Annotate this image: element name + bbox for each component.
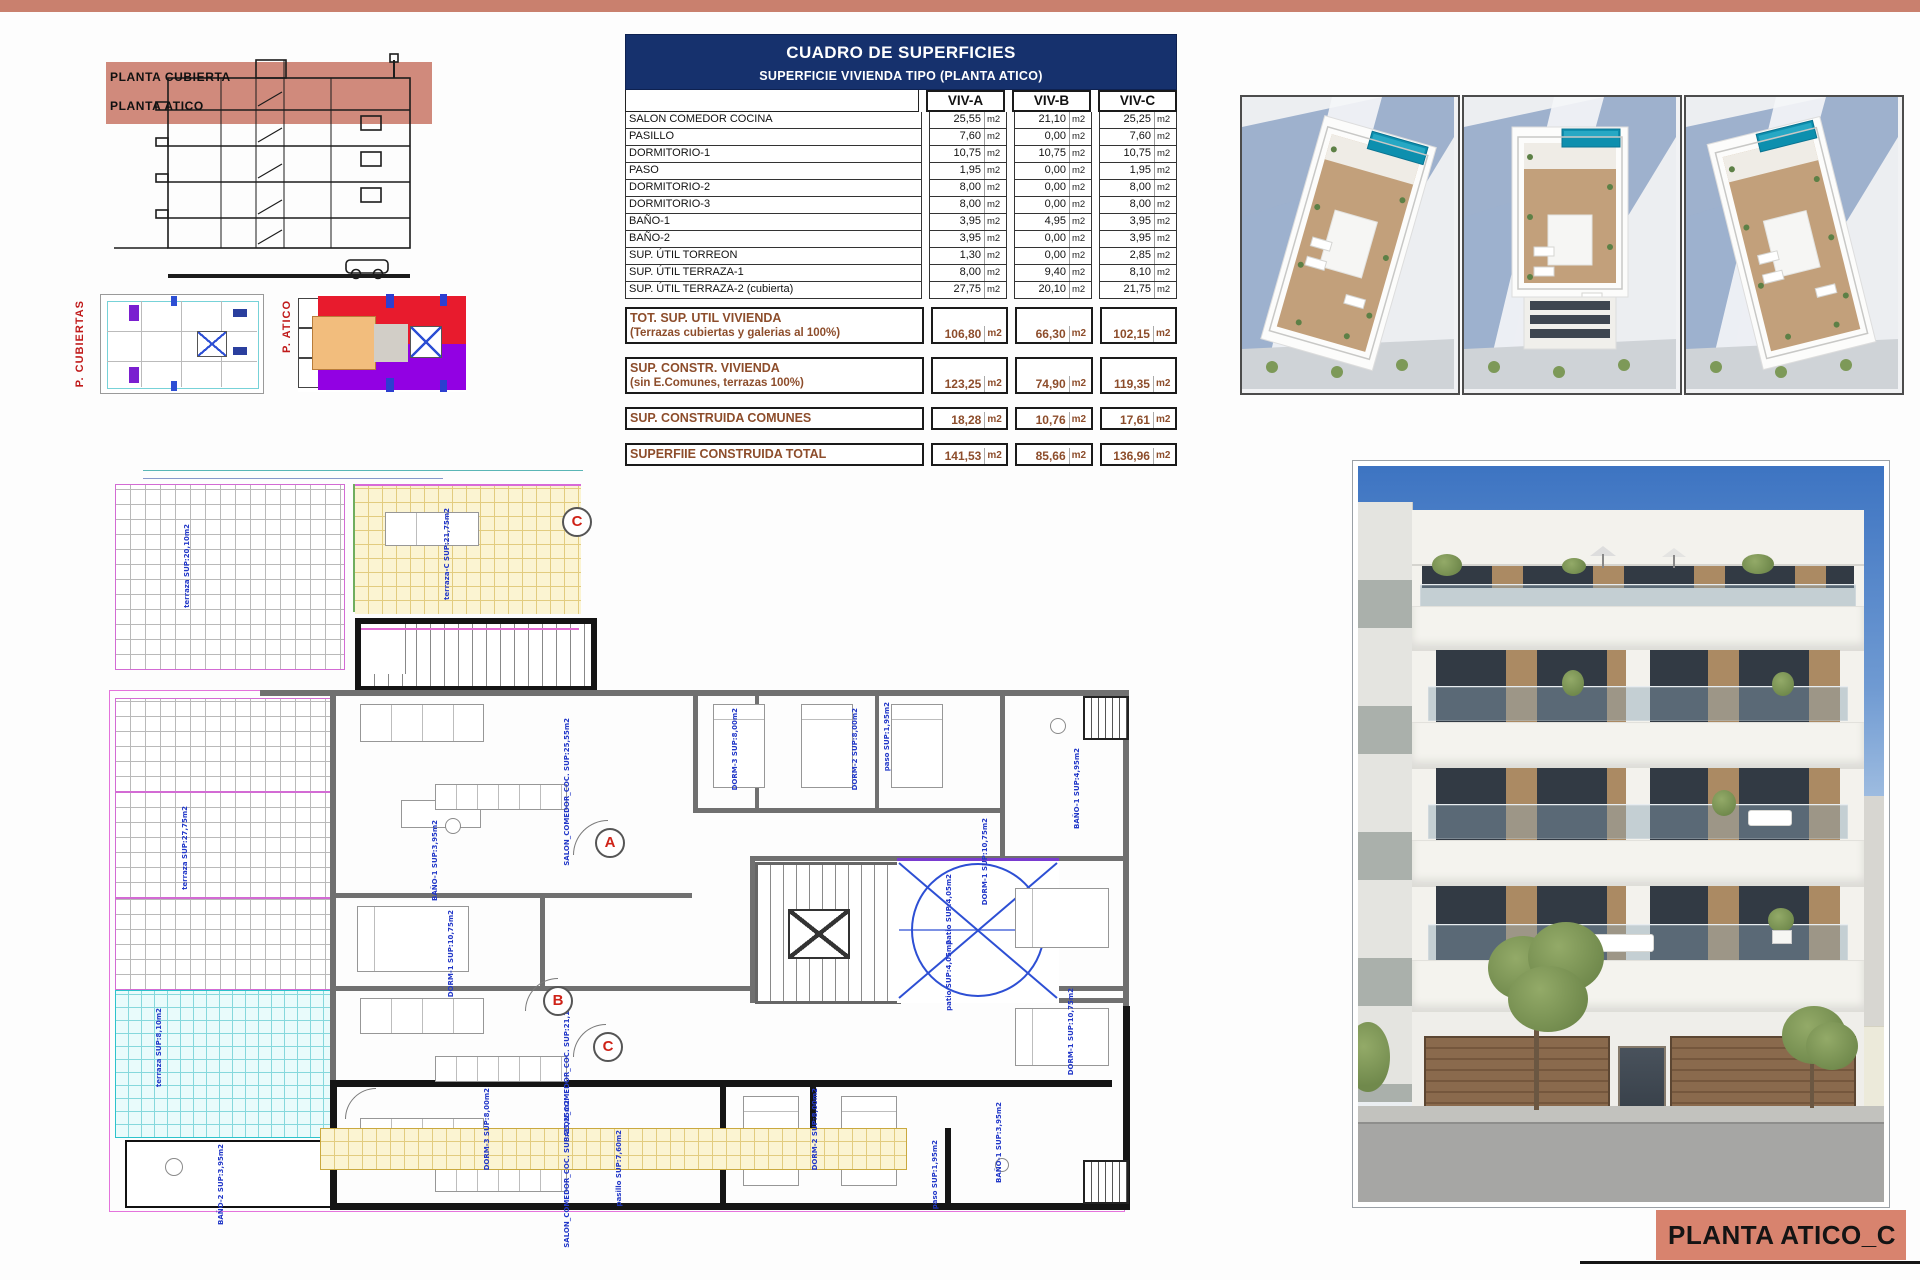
table-cell-value: 10,75m2 [1014, 146, 1092, 163]
stair-core [755, 862, 901, 1004]
table-cell-value: 3,95m2 [929, 214, 1007, 231]
plan-label-bano1_b: BAÑO-1 SUP:4,95m2 [1073, 748, 1081, 829]
label-planta-cubierta: PLANTA CUBIERTA [110, 70, 231, 84]
table-column-headers: VIV-AVIV-BVIV-C [625, 90, 1177, 112]
unit-label: m2 [1069, 146, 1091, 162]
unit-label: m2 [984, 231, 1006, 247]
unit-label: m2 [984, 180, 1006, 196]
unit-label: m2 [1069, 412, 1091, 428]
unit-label: m2 [984, 112, 1006, 128]
table-row: DORMITORIO-110,75m210,75m210,75m2 [625, 146, 1177, 163]
label-planta-atico: PLANTA ATICO [110, 99, 204, 113]
unit-label: m2 [1069, 231, 1091, 247]
furniture [435, 784, 567, 810]
unit-label: m2 [1069, 248, 1091, 264]
wall [330, 893, 692, 898]
table-cell-value: 0,00m2 [1014, 197, 1092, 214]
table-row: BAÑO-23,95m20,00m23,95m2 [625, 231, 1177, 248]
table-subtitle: SUPERFICIE VIVIENDA TIPO (PLANTA ATICO) [630, 69, 1172, 83]
table-cell-value: 4,95m2 [1014, 214, 1092, 231]
wall [693, 690, 698, 812]
plan-label-terraza_left: terraza SUP:27,75m2 [181, 806, 189, 890]
plan-label-patio_top: patio SUP:4,05m2 [945, 874, 953, 945]
furniture [360, 704, 484, 742]
unit-label: m2 [1069, 214, 1091, 230]
unit-label: m2 [1154, 248, 1176, 264]
plan-label-dorm3_a: DORM-3 SUP:8,00m2 [731, 708, 739, 790]
unit-label: m2 [1154, 282, 1176, 298]
table-row: SUP. ÚTIL TERRAZA-2 (cubierta)27,75m220,… [625, 282, 1177, 299]
column-header-spacer [625, 90, 919, 112]
unit-label: m2 [1069, 197, 1091, 213]
plan-label-paso_c: paso SUP:1,95m2 [931, 1140, 939, 1209]
unit-label: m2 [1154, 180, 1176, 196]
fixture [445, 818, 461, 834]
total-value: 17,61m2 [1100, 407, 1177, 430]
table-cell-value: 27,75m2 [929, 282, 1007, 299]
table-cell-value: 0,00m2 [1014, 129, 1092, 146]
plan-label-bano1_c: BAÑO-1 SUP:3,95m2 [995, 1102, 1003, 1183]
wall [330, 690, 336, 1082]
plan-label-pasillo_c: pasillo SUP:7,60m2 [615, 1130, 623, 1206]
terrace-hatch [115, 792, 331, 898]
table-cell-value: 8,00m2 [1099, 180, 1177, 197]
terrace-hatch [355, 484, 581, 614]
furniture [385, 512, 479, 546]
table-cell-value: 10,75m2 [1099, 146, 1177, 163]
table-cell-value: 20,10m2 [1014, 282, 1092, 299]
aerial-render-c [1684, 95, 1904, 395]
table-cell-value: 2,85m2 [1099, 248, 1177, 265]
aerial-render-b [1462, 95, 1682, 395]
elevation-render [1352, 460, 1890, 1208]
table-cell-label: SUP. ÚTIL TORREON [625, 248, 922, 265]
superficies-table: CUADRO DE SUPERFICIES SUPERFICIE VIVIEND… [625, 34, 1177, 466]
terrace-hatch [115, 990, 333, 1138]
plan-label-dorm3_c: DORM-3 SUP:8,00m2 [483, 1088, 491, 1170]
unit-label: m2 [1069, 448, 1091, 464]
street [1358, 1106, 1884, 1202]
building-section-drawing: PLANTA CUBIERTA PLANTA ATICO [106, 36, 442, 288]
table-cell-value: 8,00m2 [929, 180, 1007, 197]
unit-label: m2 [1154, 112, 1176, 128]
elevator-icon [788, 909, 850, 959]
total-value: 141,53m2 [931, 443, 1008, 466]
unit-label: m2 [1069, 180, 1091, 196]
unit-label: m2 [1069, 129, 1091, 145]
top-accent-bar [0, 0, 1920, 12]
table-cell-value: 0,00m2 [1014, 231, 1092, 248]
furniture [801, 704, 853, 788]
table-total-row: TOT. SUP. UTIL VIVIENDA(Terrazas cubiert… [625, 307, 1177, 344]
table-total-row: SUP. CONSTRUIDA COMUNES18,28m210,76m217,… [625, 407, 1177, 430]
total-value: 85,66m2 [1015, 443, 1092, 466]
unit-label: m2 [1154, 146, 1176, 162]
column-header: VIV-A [926, 90, 1005, 112]
total-label: SUP. CONSTRUIDA COMUNES [625, 407, 924, 430]
table-title: CUADRO DE SUPERFICIES [630, 43, 1172, 63]
table-total-row: SUP. CONSTR. VIVIENDA(sin E.Comunes, ter… [625, 357, 1177, 394]
unit-label: m2 [1153, 412, 1175, 428]
shaft-x-icon [410, 326, 442, 358]
table-cell-value: 25,25m2 [1099, 112, 1177, 129]
aerial-render-a [1240, 95, 1460, 395]
plan-label-dorm1_c: DORM-1 SUP:10,75m2 [1067, 988, 1075, 1075]
roof-marker-c: C [562, 507, 592, 537]
table-rows: SALON COMEDOR COCINA25,55m221,10m225,25m… [625, 112, 1177, 299]
neighbor-building-left [1358, 502, 1413, 1102]
total-label: SUPERFIIE CONSTRUIDA TOTAL [625, 443, 924, 466]
hatched-box [1083, 696, 1129, 740]
plan-label-paso_a: paso SUP:1,95m2 [883, 702, 891, 771]
table-cell-value: 8,00m2 [929, 197, 1007, 214]
furniture [891, 704, 943, 788]
table-cell-value: 21,10m2 [1014, 112, 1092, 129]
table-cell-value: 3,95m2 [1099, 214, 1177, 231]
total-value: 119,35m2 [1100, 357, 1177, 394]
fixture [165, 1158, 183, 1176]
unit-label: m2 [1069, 112, 1091, 128]
sheet-title-box: PLANTA ATICO_C [1656, 1210, 1906, 1260]
total-value: 66,30m2 [1015, 307, 1092, 344]
unit-label: m2 [1153, 326, 1175, 342]
unit-label: m2 [984, 214, 1006, 230]
roof-terrace-plan: C terraza SUP:20,10m2terraza-C SUP:21,75… [113, 468, 595, 692]
table-cell-value: 7,60m2 [929, 129, 1007, 146]
table-cell-value: 25,55m2 [929, 112, 1007, 129]
furniture [360, 998, 484, 1034]
table-total-row: SUPERFIIE CONSTRUIDA TOTAL141,53m285,66m… [625, 443, 1177, 466]
total-label: SUP. CONSTR. VIVIENDA(sin E.Comunes, ter… [625, 357, 924, 394]
plan-label-bano2_c: BAÑO-2 SUP:3,95m2 [217, 1144, 225, 1225]
unit-label: m2 [1154, 231, 1176, 247]
table-cell-value: 1,95m2 [929, 163, 1007, 180]
table-cell-label: PASILLO [625, 129, 922, 146]
total-label: TOT. SUP. UTIL VIVIENDA(Terrazas cubiert… [625, 307, 924, 344]
roof-stair [355, 618, 597, 692]
unit-label: m2 [1153, 448, 1175, 464]
table-cell-value: 3,95m2 [1099, 231, 1177, 248]
unit-label: m2 [1154, 129, 1176, 145]
plan-label-salon_c: SALON_COMEDOR_COC. SUP:25,25m2 [563, 1100, 571, 1248]
column-header: VIV-B [1012, 90, 1091, 112]
table-row: DORMITORIO-28,00m20,00m28,00m2 [625, 180, 1177, 197]
table-cell-label: SALON COMEDOR COCINA [625, 112, 922, 129]
unit-label: m2 [984, 265, 1006, 281]
table-cell-value: 8,00m2 [929, 265, 1007, 282]
table-row: PASILLO7,60m20,00m27,60m2 [625, 129, 1177, 146]
furniture [1015, 888, 1109, 948]
table-row: BAÑO-13,95m24,95m23,95m2 [625, 214, 1177, 231]
sheet-frame-line [1580, 1261, 1920, 1264]
plan-label-dorm1_a: DORM-1 SUP:10,75m2 [447, 910, 455, 997]
total-value: 106,80m2 [931, 307, 1008, 344]
unit-label: m2 [1154, 197, 1176, 213]
unit-label: m2 [984, 248, 1006, 264]
plan-label-patio_bot: patio SUP:4,05m2 [945, 940, 953, 1011]
table-cell-value: 8,00m2 [1099, 197, 1177, 214]
total-value: 123,25m2 [931, 357, 1008, 394]
table-row: DORMITORIO-38,00m20,00m28,00m2 [625, 197, 1177, 214]
unit-label: m2 [984, 376, 1006, 392]
plan-label-dorm2_a: DORM-2 SUP:8,00m2 [851, 708, 859, 790]
roof-label-roof_left: terraza SUP:20,10m2 [183, 524, 191, 608]
plan-label-dorm1_b: DORM-1 SUP:10,75m2 [981, 818, 989, 905]
table-cell-label: BAÑO-2 [625, 231, 922, 248]
table-cell-value: 21,75m2 [1099, 282, 1177, 299]
unit-marker-b: B [543, 986, 573, 1016]
total-value: 136,96m2 [1100, 443, 1177, 466]
table-cell-label: DORMITORIO-2 [625, 180, 922, 197]
wall [330, 1203, 1130, 1210]
total-value: 18,28m2 [931, 407, 1008, 430]
table-cell-value: 7,60m2 [1099, 129, 1177, 146]
table-cell-label: DORMITORIO-1 [625, 146, 922, 163]
unit-label: m2 [984, 448, 1006, 464]
table-row: SALON COMEDOR COCINA25,55m221,10m225,25m… [625, 112, 1177, 129]
unit-label: m2 [984, 197, 1006, 213]
fixture [1050, 718, 1066, 734]
table-row: PASO1,95m20,00m21,95m2 [625, 163, 1177, 180]
unit-label: m2 [1069, 163, 1091, 179]
keyplan-atico-label: P. ATICO [281, 300, 293, 353]
plan-label-bano1_a: BAÑO-1 SUP:3,95m2 [431, 820, 439, 901]
unit-label: m2 [984, 163, 1006, 179]
unit-label: m2 [1153, 376, 1175, 392]
table-cell-value: 1,95m2 [1099, 163, 1177, 180]
terrace-hatch [115, 698, 331, 792]
unit-label: m2 [984, 129, 1006, 145]
keyplan-cubiertas-label: P. CUBIERTAS [74, 300, 86, 387]
wall [1000, 690, 1005, 858]
terrace-hatch [115, 898, 331, 990]
wall [693, 808, 1005, 813]
table-cell-value: 9,40m2 [1014, 265, 1092, 282]
unit-label: m2 [1154, 265, 1176, 281]
unit-label: m2 [1069, 282, 1091, 298]
shaft-x-icon [197, 331, 227, 357]
unit-marker-a: A [595, 828, 625, 858]
wall [945, 1128, 951, 1206]
unit-label: m2 [984, 412, 1006, 428]
table-row: SUP. ÚTIL TORREON1,30m20,00m22,85m2 [625, 248, 1177, 265]
table-cell-label: DORMITORIO-3 [625, 197, 922, 214]
table-totals: TOT. SUP. UTIL VIVIENDA(Terrazas cubiert… [625, 307, 1177, 466]
unit-label: m2 [1069, 265, 1091, 281]
table-cell-label: SUP. ÚTIL TERRAZA-1 [625, 265, 922, 282]
table-cell-value: 0,00m2 [1014, 248, 1092, 265]
table-cell-value: 3,95m2 [929, 231, 1007, 248]
wall [540, 893, 545, 988]
roof-label-roof_yellow: terraza-C SUP:21,75m2 [443, 508, 451, 600]
furniture [435, 1056, 567, 1082]
table-cell-label: BAÑO-1 [625, 214, 922, 231]
unit-label: m2 [1154, 163, 1176, 179]
hatched-box [1083, 1160, 1129, 1204]
column-header: VIV-C [1098, 90, 1177, 112]
table-cell-label: PASO [625, 163, 922, 180]
table-header: CUADRO DE SUPERFICIES SUPERFICIE VIVIEND… [625, 34, 1177, 90]
table-cell-label: SUP. ÚTIL TERRAZA-2 (cubierta) [625, 282, 922, 299]
plan-label-salon_a: SALON_COMEDOR_COC. SUP:25,55m2 [563, 718, 571, 866]
plan-label-terraza_cyan: terraza SUP:8,10m2 [155, 1008, 163, 1087]
furniture [713, 704, 765, 788]
sheet-title: PLANTA ATICO_C [1668, 1220, 1896, 1251]
table-cell-value: 8,10m2 [1099, 265, 1177, 282]
unit-label: m2 [984, 282, 1006, 298]
table-row: SUP. ÚTIL TERRAZA-18,00m29,40m28,10m2 [625, 265, 1177, 282]
table-cell-value: 0,00m2 [1014, 180, 1092, 197]
unit-label: m2 [984, 326, 1006, 342]
plan-label-dorm2_c: DORM-2 SUP:8,00m2 [811, 1088, 819, 1170]
keyplan-atico [298, 294, 466, 392]
unit-marker-c: C [593, 1032, 623, 1062]
table-cell-value: 1,30m2 [929, 248, 1007, 265]
unit-label: m2 [1069, 326, 1091, 342]
table-cell-value: 0,00m2 [1014, 163, 1092, 180]
total-value: 102,15m2 [1100, 307, 1177, 344]
table-cell-value: 10,75m2 [929, 146, 1007, 163]
unit-label: m2 [1069, 376, 1091, 392]
unit-label: m2 [1154, 214, 1176, 230]
keyplan-cubiertas [100, 294, 264, 394]
total-value: 74,90m2 [1015, 357, 1092, 394]
furniture [1015, 1008, 1109, 1066]
total-value: 10,76m2 [1015, 407, 1092, 430]
wall [875, 694, 879, 810]
terrace-hatch [115, 484, 345, 670]
floor-plan: ABC terraza SUP:27,75m2terraza SUP:8,10m… [95, 688, 1137, 1218]
plan-sheet: PLANTA CUBIERTA PLANTA ATICO P. CUBIERTA… [0, 0, 1920, 1280]
unit-label: m2 [984, 146, 1006, 162]
